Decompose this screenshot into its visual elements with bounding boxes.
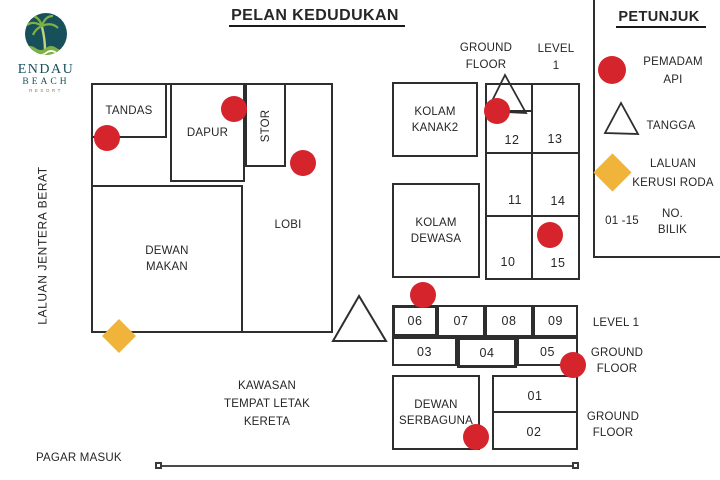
fire-extinguisher-legend-icon [598,56,626,84]
fire-extinguisher-icon [463,424,489,450]
fence-end-marker [155,462,162,469]
kolam-kanak-box: KOLAM KANAK2 [392,82,478,157]
room-04: 04 [457,337,517,368]
room-14: 14 [543,194,573,208]
fire-extinguisher-icon [94,125,120,151]
room-10: 10 [493,255,523,269]
room-dapur-label: DAPUR [187,125,228,141]
rooms-01-02-divider [492,411,578,413]
room-08: 08 [485,305,533,337]
fire-extinguisher-icon [484,98,510,124]
room-02: 02 [519,425,549,439]
ground-floor-label: GROUND FLOOR [582,409,644,441]
top-ground-floor-label: GROUND FLOOR [446,40,526,74]
floor-plan: ENDAU BEACH RESORT PELAN KEDUDUKAN LALUA… [0,0,720,480]
room-03: 03 [392,337,457,366]
kolam-dewasa-label: KOLAM DEWASA [411,215,462,247]
room-09: 09 [533,305,578,337]
room-11: 11 [500,193,530,207]
room-13: 13 [540,132,570,146]
kolam-dewasa-box: KOLAM DEWASA [392,183,480,278]
stairs-icon [330,292,390,345]
room-stor-label: STOR [258,105,274,147]
room-dewan-makan: DEWAN MAKAN [91,185,243,333]
fire-extinguisher-icon [410,282,436,308]
fence-end-marker [572,462,579,469]
gate-fence-line [159,465,577,467]
legend-title: PETUNJUK [608,9,714,25]
heavy-machinery-lane-label: LALUAN JENTERA BERAT [35,151,52,341]
fire-extinguisher-icon [560,352,586,378]
fire-extinguisher-icon [537,222,563,248]
kolam-kanak-label: KOLAM KANAK2 [412,104,459,136]
parking-area-label: KAWASAN TEMPAT LETAK KERETA [205,377,329,431]
room-12: 12 [497,133,527,147]
room-lobi-label: LOBI [258,217,318,234]
room-dewan-makan-label: DEWAN MAKAN [145,243,188,275]
page-title: PELAN KEDUDUKAN [197,7,437,25]
logo-name: ENDAU [18,62,75,77]
logo-tagline: RESORT [29,88,63,93]
palm-tree-icon: ENDAU BEACH RESORT [6,4,92,100]
fire-extinguisher-icon [221,96,247,122]
legend-room-number-label: NO. BILIK [645,206,700,238]
logo-sub: BEACH [22,77,69,87]
level-1-label: LEVEL 1 [588,315,644,332]
resort-logo: ENDAU BEACH RESORT [6,4,92,100]
room-01: 01 [520,389,550,403]
room-07: 07 [437,305,485,337]
legend-wheelchair-label: LALUAN KERUSI RODA [624,155,720,193]
legend-room-range: 01 -15 [596,213,648,230]
rooms-block-divider-h2 [485,215,580,217]
ground-floor-label: GROUND FLOOR [586,345,648,377]
room-06: 06 [392,305,438,337]
room-15: 15 [543,256,573,270]
entrance-gate-label: PAGAR MASUK [36,450,146,467]
room-tandas-label: TANDAS [106,103,153,119]
legend-fire-label: PEMADAM API [634,53,712,89]
stairs-legend-icon [602,100,642,136]
fire-extinguisher-icon [290,150,316,176]
rooms-block-divider-vertical [531,83,533,280]
rooms-block-divider-h1 [485,152,580,154]
top-level-1-label: LEVEL 1 [532,41,580,75]
dewan-serbaguna-label: DEWAN SERBAGUNA [399,397,473,429]
legend-stairs-label: TANGGA [642,118,700,135]
